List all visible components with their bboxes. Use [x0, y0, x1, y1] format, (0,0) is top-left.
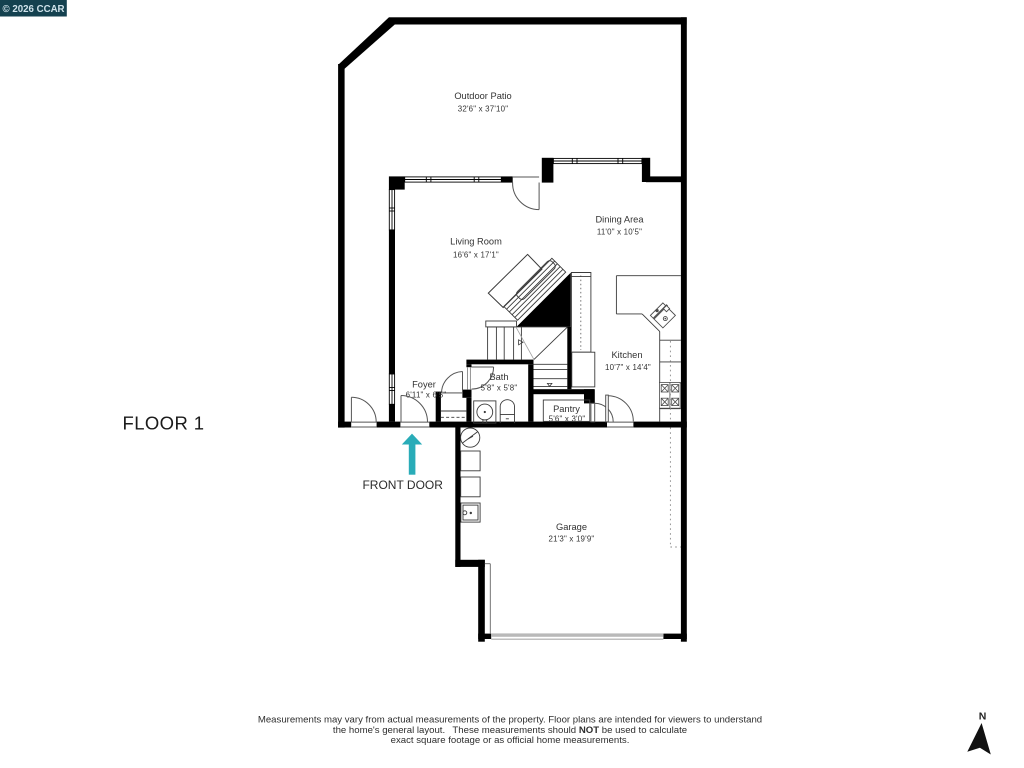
- svg-text:Foyer: Foyer: [412, 380, 436, 390]
- svg-text:Bath: Bath: [489, 372, 508, 382]
- svg-text:16'6" x 17'1": 16'6" x 17'1": [453, 251, 499, 260]
- svg-text:21'3" x 19'9": 21'3" x 19'9": [549, 535, 595, 544]
- svg-text:Measurements may vary from act: Measurements may vary from actual measur…: [258, 714, 762, 725]
- svg-text:the home's general layout. Th: the home's general layout. These measure…: [333, 725, 687, 736]
- svg-text:Pantry: Pantry: [553, 404, 580, 414]
- svg-text:Kitchen: Kitchen: [611, 350, 642, 360]
- svg-text:Garage: Garage: [556, 522, 587, 532]
- svg-text:Living Room: Living Room: [450, 237, 502, 247]
- svg-text:FLOOR 1: FLOOR 1: [123, 413, 205, 434]
- svg-text:Dining Area: Dining Area: [595, 215, 644, 225]
- svg-text:FRONT DOOR: FRONT DOOR: [362, 478, 443, 492]
- svg-text:32'6" x 37'10": 32'6" x 37'10": [458, 105, 508, 114]
- svg-text:5'6" x 3'0": 5'6" x 3'0": [549, 414, 586, 423]
- svg-text:5'8" x 5'8": 5'8" x 5'8": [481, 384, 518, 393]
- svg-text:N: N: [979, 711, 987, 723]
- svg-text:10'7" x 14'4": 10'7" x 14'4": [605, 363, 651, 372]
- svg-text:© 2026 CCAR: © 2026 CCAR: [3, 4, 65, 15]
- svg-text:exact square footage or as off: exact square footage or as official home…: [391, 735, 630, 746]
- svg-text:11'0" x 10'5": 11'0" x 10'5": [597, 228, 642, 237]
- svg-text:Outdoor Patio: Outdoor Patio: [454, 91, 511, 101]
